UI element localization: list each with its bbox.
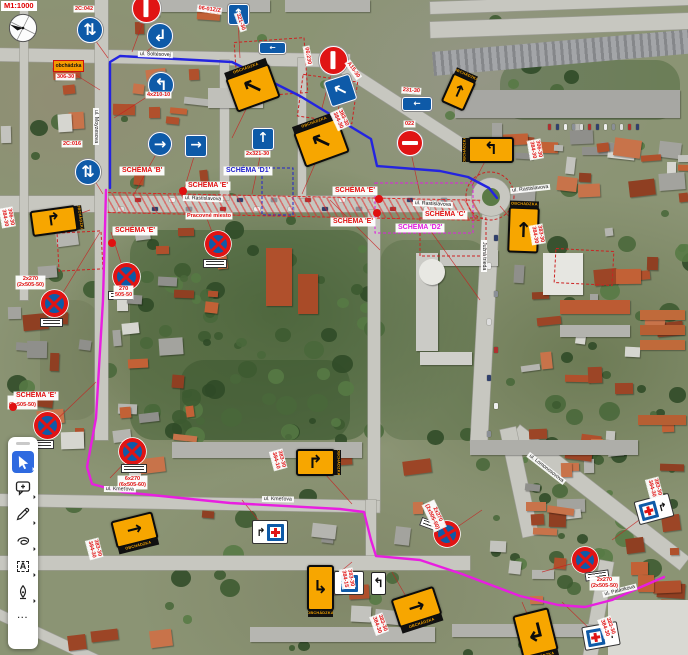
annotation-toolbar[interactable]: A ···: [8, 437, 38, 649]
map-scale-label: M1:1000: [1, 1, 37, 11]
schema-point-marker: [179, 187, 187, 195]
sign-arrow-glyph: ↖: [331, 80, 350, 100]
sign-arrow-glyph: ↑: [257, 132, 268, 146]
street-name-label: ul. Kmeťova: [262, 496, 294, 503]
pen-nib-icon: [15, 584, 31, 600]
sign-code-label: Pracovné miesto: [186, 213, 232, 219]
street-name-label: ul. Lomonosovova: [526, 452, 566, 485]
street-name-label: Južná trieda: [481, 240, 487, 272]
sign-code-label: 383-30 384-30: [646, 477, 663, 499]
sign-code-label: 022: [404, 121, 415, 127]
traffic-sign-rect-blue: ←: [259, 42, 286, 54]
schema-label: SCHÉMA 'D1': [224, 167, 272, 175]
traffic-sign-detour: →OBCHÁDZKA: [110, 511, 158, 549]
sign-arrow-glyph: →: [154, 137, 166, 152]
signature-tool[interactable]: [11, 579, 35, 605]
traffic-sign-detour: ↰OBCHÁDZKA: [468, 137, 514, 163]
schema-label: SCHÉMA 'B': [120, 167, 164, 175]
traffic-schema-map-document[interactable]: ⇅↲↰⇅→→↑↖↑←←↖OBCHÁDZKA↖OBCHÁDZKA↱OBCHÁDZK…: [0, 0, 688, 655]
sign-code-label: 06:230: [303, 46, 313, 66]
schema-point-marker: [9, 403, 17, 411]
lasso-loop-icon: [15, 532, 31, 548]
sign-code-label: 2C:042: [74, 6, 94, 12]
detour-arrow-glyph: ↲: [523, 619, 549, 648]
comment-bubble-icon: [15, 480, 31, 496]
traffic-sign-square-blue: ↖: [323, 73, 357, 107]
sign-arrow-glyph: ↲: [153, 28, 167, 44]
street-name-label: ul. Moyzesova: [93, 108, 99, 145]
traffic-sign-no-stop: [119, 438, 146, 465]
detour-arrow-glyph: →: [125, 519, 144, 541]
schema-label: SCHÉMA 'E': [14, 392, 58, 400]
detour-banner: OBCHÁDZKA: [462, 138, 469, 162]
sign-code-label: 2x270 (2x505-50): [16, 276, 45, 289]
traffic-sign-circle-blue: ↲: [147, 23, 173, 49]
sign-code-label: 383-30 384-30: [370, 613, 388, 635]
schema-point-marker: [108, 239, 116, 247]
traffic-sign-circle-blue: ⇅: [75, 159, 101, 185]
text-box-tool[interactable]: A: [11, 553, 35, 579]
traffic-sign-detour: ↑OBCHÁDZKA: [441, 72, 477, 111]
sign-code-label: 2C:016: [62, 141, 82, 147]
hospital-cross-icon: [267, 524, 284, 541]
more-tools-button[interactable]: ···: [11, 605, 35, 631]
traffic-sign-detour: ↲OBCHÁDZKA: [512, 607, 559, 655]
sign-code-label: 2x321-30: [245, 151, 270, 157]
detour-arrow-glyph: →: [406, 595, 428, 619]
traffic-sign-no-stop: [34, 412, 61, 439]
mini-detour-text: obchádzka: [56, 64, 82, 69]
traffic-sign-no-entry: [132, 0, 161, 23]
sign-code-label: 06-01Z/Z: [197, 5, 222, 15]
schema-point-marker: [375, 195, 383, 203]
sign-code-label: 383-30 384-30: [530, 224, 546, 245]
street-name-label: ul. Kmeťova: [104, 486, 136, 493]
schema-label: SCHÉMA 'D2': [396, 224, 444, 232]
pencil-icon: [15, 506, 31, 522]
traffic-sign-no-stop: [205, 231, 231, 257]
traffic-sign-mini-detour: obchádzka: [53, 60, 84, 72]
traffic-sign-no-stop: [41, 290, 68, 317]
additional-panel-text: [124, 466, 143, 470]
traffic-sign-circle-blue: ⇅: [77, 17, 103, 43]
sign-arrow-glyph: ←: [413, 100, 420, 109]
street-name-label: ul. Šoltésovej: [138, 51, 173, 58]
text-box-icon: A: [17, 561, 29, 572]
traffic-sign-square-blue: →: [185, 135, 207, 157]
no-entry-bar: [144, 0, 149, 18]
detour-arrow-glyph: ↰: [484, 141, 498, 158]
detour-banner: OBCHÁDZKA: [308, 610, 333, 617]
detour-arrow-glyph: ↖: [308, 128, 336, 158]
traffic-sign-panel: [203, 259, 227, 268]
sign-code-label: 270 505-50: [114, 286, 133, 299]
sign-arrow-glyph: ⇅: [81, 164, 95, 180]
detour-banner: OBCHÁDZKA: [334, 450, 341, 475]
schema-label: SCHÉMA 'C': [423, 211, 467, 219]
schema-label: SCHÉMA 'E': [113, 227, 157, 235]
detour-banner: OBCHÁDZKA: [510, 201, 539, 209]
sign-code-label: 231-30: [402, 87, 422, 95]
sign-code-label: 383-30 384-30: [86, 538, 103, 560]
traffic-annotations: ⇅↲↰⇅→→↑↖↑←←↖OBCHÁDZKA↖OBCHÁDZKA↱OBCHÁDZK…: [0, 0, 688, 655]
detour-arrow-glyph: ↑: [449, 82, 468, 103]
schema-point-marker: [373, 209, 381, 217]
schema-label: SCHÉMA 'E': [186, 182, 230, 190]
no-entry-bar: [331, 51, 336, 69]
traffic-sign-no-entry: [319, 46, 348, 75]
street-name-label: ul. Rastislavova: [510, 184, 551, 194]
detour-banner: OBCHÁDZKA: [118, 538, 159, 555]
sign-arrow-glyph: →: [190, 139, 201, 153]
pencil-tool[interactable]: [11, 501, 35, 527]
lasso-tool[interactable]: [11, 527, 35, 553]
compass-icon: [8, 13, 38, 48]
schema-label: SCHÉMA 'E': [333, 187, 377, 195]
ellipsis-icon: ···: [18, 614, 29, 622]
traffic-sign-panel: [40, 318, 63, 327]
toolbar-drag-handle[interactable]: [16, 442, 30, 445]
no-entry-bar: [402, 141, 418, 145]
traffic-sign-uturn-panel: ↰: [371, 572, 386, 595]
traffic-sign-no-entry: [397, 130, 423, 156]
traffic-sign-detour: ↱OBCHÁDZKA: [296, 449, 335, 476]
sign-arrow-glyph: ↰: [154, 77, 168, 93]
detour-banner: OBCHÁDZKA: [74, 205, 84, 230]
traffic-sign-detour: ↱OBCHÁDZKA: [29, 205, 78, 237]
detour-arrow-glyph: ↱: [46, 212, 63, 231]
traffic-sign-circle-blue: →: [148, 132, 172, 156]
sign-code-label: 306-30 384-30: [0, 207, 15, 228]
sign-code-label: 383-30 384-10: [270, 449, 287, 471]
hospital-arrow-glyph: ↱: [256, 527, 265, 538]
detour-banner: OBCHÁDZKA: [524, 649, 560, 655]
sign-code-label: 4x210-10: [146, 92, 171, 98]
schema-label: SCHÉMA 'E': [331, 218, 375, 226]
sign-code-label: 306-30: [56, 74, 75, 80]
u-turn-glyph: ↰: [373, 577, 384, 590]
sign-arrow-glyph: ←: [269, 44, 275, 51]
traffic-sign-detour: →OBCHÁDZKA: [390, 586, 442, 628]
sign-arrow-glyph: ⇅: [83, 22, 97, 38]
traffic-sign-rect-blue: ←: [402, 97, 432, 111]
detour-arrow-glyph: ↳: [313, 579, 328, 597]
traffic-sign-panel: [121, 464, 147, 473]
sign-code-label: 306-30 384-30: [528, 139, 544, 160]
traffic-sign-detour: ↖OBCHÁDZKA: [225, 63, 281, 113]
traffic-sign-square-blue: ↑: [252, 128, 274, 150]
detour-arrow-glyph: ↱: [308, 454, 323, 472]
traffic-sign-detour: ↳OBCHÁDZKA: [307, 565, 334, 611]
add-comment-tool[interactable]: [11, 475, 35, 501]
traffic-sign-hospital: ↱: [252, 520, 288, 544]
traffic-sign-no-stop: [572, 547, 598, 573]
additional-panel-text: [206, 261, 224, 265]
additional-panel-text: [43, 320, 60, 324]
hospital-arrow-glyph: ↱: [657, 500, 669, 513]
detour-arrow-glyph: ↖: [240, 73, 267, 102]
select-tool[interactable]: [12, 451, 34, 473]
